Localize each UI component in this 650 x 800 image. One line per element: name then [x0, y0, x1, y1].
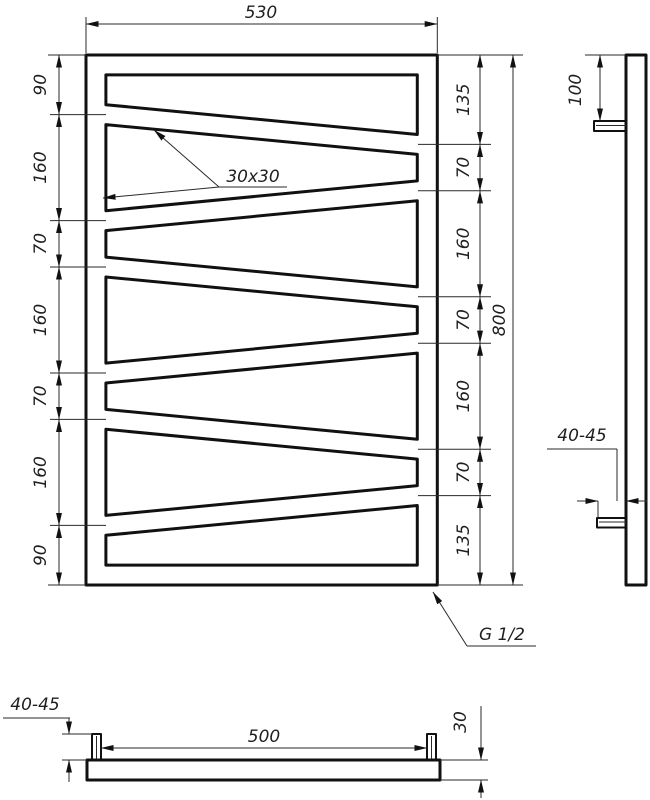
dim-left-3: 70 — [31, 233, 51, 255]
dim-right-2: 70 — [454, 157, 474, 179]
leader-thread: G 1/2 — [433, 592, 536, 646]
dim-bottom-wall-distance: 40-45 — [3, 695, 92, 782]
dim-right-3: 160 — [454, 228, 474, 260]
dim-label-530: 530 — [245, 3, 277, 23]
dim-left-chain: 90 160 70 160 70 160 90 — [31, 55, 106, 585]
dim-right-6: 70 — [454, 462, 474, 484]
bottom-tube-outline — [87, 760, 440, 780]
dim-right-4: 70 — [454, 309, 474, 331]
front-view — [86, 55, 437, 585]
dim-left-7: 90 — [31, 544, 51, 566]
dim-bottom-bracket-spacing: 500 — [101, 727, 427, 748]
dim-left-4: 160 — [31, 304, 51, 336]
technical-drawing-towel-rail: 530 90 160 70 160 70 160 90 — [0, 0, 650, 800]
dim-side-bracket-offset: 100 — [566, 55, 626, 121]
dim-left-5: 70 — [31, 385, 51, 407]
dim-label-g12: G 1/2 — [479, 625, 525, 645]
dim-label-800: 800 — [490, 304, 510, 336]
dim-right-5: 160 — [454, 380, 474, 412]
dim-bottom-tube-size: 30 — [440, 706, 488, 798]
dim-label-500: 500 — [248, 727, 280, 747]
dim-label-30: 30 — [451, 711, 471, 733]
dim-label-30x30: 30x30 — [226, 167, 279, 187]
dim-label-bottom-40-45: 40-45 — [10, 695, 59, 715]
dim-left-1: 90 — [31, 74, 51, 96]
dim-label-side-40-45: 40-45 — [557, 426, 606, 446]
zigzag-cutouts — [106, 75, 417, 565]
side-view: 100 40-45 — [547, 55, 647, 585]
dim-right-1: 135 — [454, 83, 474, 115]
dim-left-2: 160 — [31, 151, 51, 183]
side-bracket-bottom — [597, 518, 626, 528]
dim-front-width: 530 — [86, 3, 437, 53]
drawing-sheet: 530 90 160 70 160 70 160 90 — [0, 0, 650, 800]
bottom-view: 500 40-45 30 — [3, 695, 488, 798]
dim-front-height: 800 — [490, 55, 513, 585]
dim-label-100: 100 — [566, 74, 586, 106]
dim-right-7: 135 — [454, 524, 474, 556]
dim-side-wall-distance: 40-45 — [547, 426, 647, 517]
side-tube-outline — [626, 55, 646, 585]
dim-left-6: 160 — [31, 456, 51, 488]
